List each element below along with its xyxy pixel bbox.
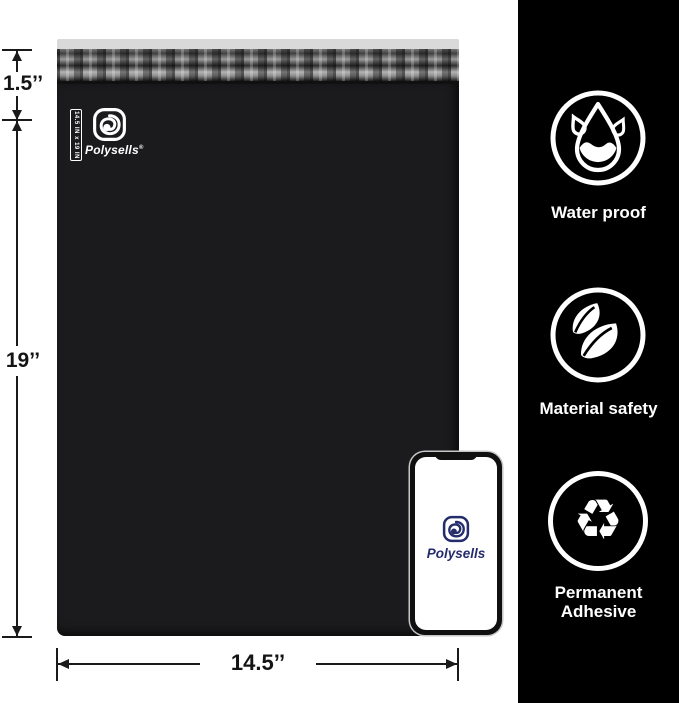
recycle-glyph-char: ♻ [573, 493, 623, 549]
feature-label-material-safety: Material safety [518, 399, 679, 418]
size-tag-text: 14.5 IN x 19 IN [73, 111, 79, 159]
polysells-logo-icon [92, 107, 127, 142]
water-drop-icon [548, 88, 648, 188]
phone-brand-text: Polysells [427, 546, 486, 561]
phone-notch [435, 452, 477, 460]
phone-screen: Polysells [415, 457, 497, 630]
bag-brand-text: Polysells® [85, 143, 155, 157]
phone-mockup: Polysells [410, 452, 502, 635]
bag-height-label: 19’’ [0, 346, 46, 376]
phone-polysells-logo-icon [442, 515, 470, 543]
size-tag: 14.5 IN x 19 IN [70, 109, 82, 161]
flap-height-label: 1.5’’ [0, 72, 46, 96]
bag-adhesive-seal-strip [57, 49, 459, 84]
height-dim-arrow-up [12, 121, 22, 131]
height-dim-line [16, 121, 18, 636]
recycle-icon: ♻ [548, 471, 648, 571]
product-image: 14.5 IN x 19 IN Polysells® 1.5’’ 19’’ 14… [0, 0, 679, 703]
width-dim-tick-right [457, 648, 459, 681]
flap-dim-arrow-up [12, 51, 22, 61]
bag-flap-edge [57, 39, 459, 49]
bag-brand-name: Polysells [85, 143, 139, 157]
bag-width-label: 14.5’’ [200, 648, 316, 678]
feature-label-water-proof: Water proof [518, 203, 679, 222]
height-dim-tick-bottom [2, 636, 32, 638]
feature-label-permanent-adhesive: Permanent Adhesive [518, 583, 679, 621]
width-dim-arrow-right [446, 659, 457, 669]
bag-body [57, 84, 459, 636]
poly-mailer-bag: 14.5 IN x 19 IN Polysells® [57, 39, 459, 636]
width-dim-arrow-left [58, 659, 69, 669]
height-dim-arrow-down [12, 626, 22, 636]
leaves-icon [548, 285, 648, 385]
features-sidebar: Water proof Material safety ♻ Permanent … [518, 0, 679, 703]
registered-mark: ® [139, 145, 144, 151]
